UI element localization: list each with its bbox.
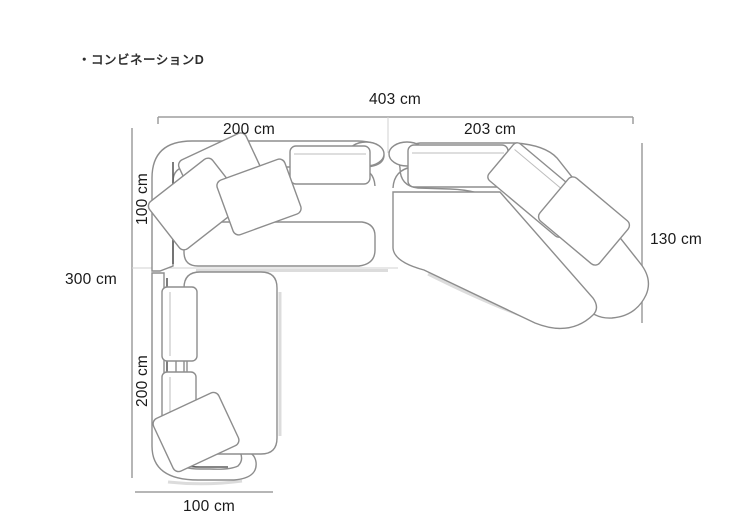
lower-sofa-module bbox=[151, 272, 277, 480]
dim-total-width: 403 cm bbox=[369, 91, 421, 109]
sofa-floorplan-drawing bbox=[0, 0, 750, 522]
dim-total-height: 300 cm bbox=[65, 271, 117, 289]
dim-right-depth: 130 cm bbox=[650, 231, 702, 249]
dim-bottom-width: 100 cm bbox=[183, 498, 235, 516]
dim-left-section-width: 200 cm bbox=[223, 121, 275, 139]
right-chaise-module bbox=[389, 141, 648, 329]
dim-right-section-width: 203 cm bbox=[464, 121, 516, 139]
dim-upper-left-depth: 100 cm bbox=[134, 173, 152, 225]
left-sofa-module bbox=[146, 131, 384, 271]
dim-lower-left-height: 200 cm bbox=[134, 355, 152, 407]
product-dimension-page: ・コンビネーションD bbox=[0, 0, 750, 522]
